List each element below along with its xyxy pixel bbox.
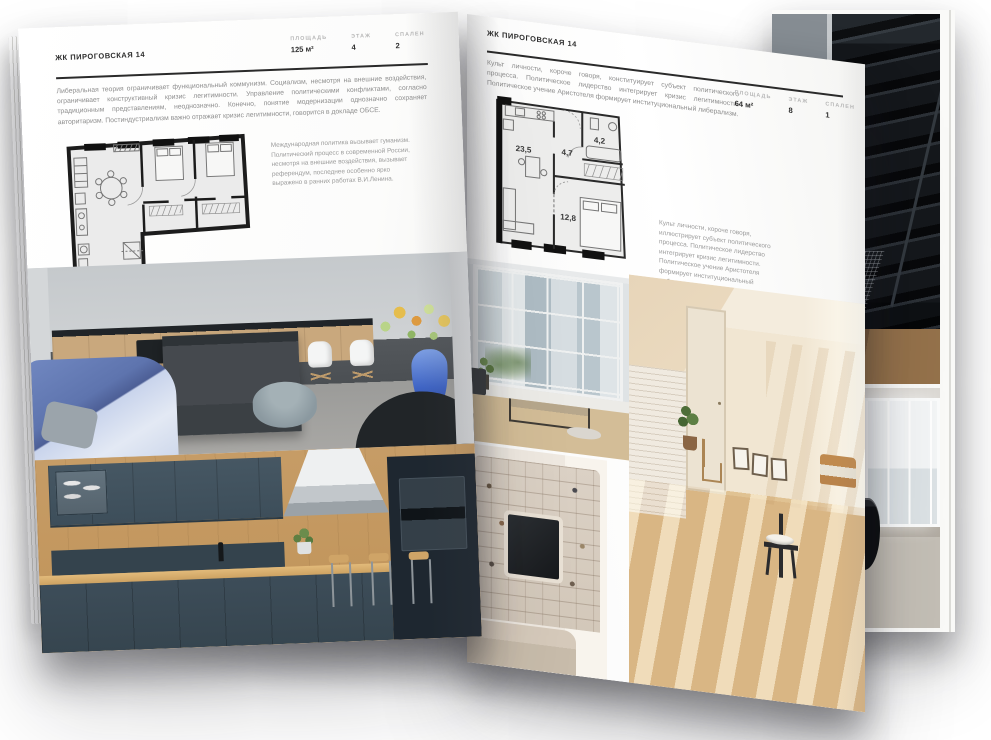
room-label-bedroom: 12,8 bbox=[560, 212, 576, 223]
stat-area: ПЛОЩАДЬ 64 м² bbox=[735, 90, 772, 113]
right-page: ЖК ПИРОГОВСКАЯ 14 Культ личности, короче… bbox=[467, 14, 865, 712]
tv-screen-shape bbox=[508, 514, 560, 580]
white-chair-shape bbox=[308, 341, 336, 388]
stat-area: ПЛОЩАДЬ 125 м² bbox=[290, 35, 328, 54]
wall-shadow-stripes bbox=[766, 341, 865, 517]
stair-rail-shape bbox=[890, 47, 940, 307]
flowers-shape bbox=[368, 298, 462, 357]
chair-leg bbox=[765, 547, 771, 575]
stat-bedrooms: СПАЛЕН 1 bbox=[825, 101, 855, 123]
photo-shelving-tv bbox=[467, 443, 607, 680]
ottoman-shape bbox=[567, 425, 601, 440]
bar-stool-shape bbox=[408, 551, 430, 608]
floor-plan-one-bedroom: 23,5 4,7 4,2 12,8 bbox=[485, 88, 637, 271]
plan-note: Международная политика вызывает гуманизм… bbox=[271, 135, 421, 189]
chair-leg bbox=[790, 550, 796, 578]
room-label-hall: 4,7 bbox=[561, 148, 573, 158]
upper-cabinets-shape bbox=[48, 457, 283, 528]
picture-frame bbox=[732, 447, 749, 470]
appliance-tower-shape bbox=[387, 453, 482, 640]
wood-chair-shape bbox=[702, 439, 722, 484]
leather-armchair-shape bbox=[820, 454, 856, 489]
right-page-title: ЖК ПИРОГОВСКАЯ 14 bbox=[487, 29, 577, 49]
photo-living-room bbox=[27, 252, 474, 461]
picture-frame bbox=[751, 453, 768, 477]
room-label-living: 23,5 bbox=[516, 144, 532, 155]
potted-plant-shape bbox=[674, 403, 704, 453]
pouf-shape bbox=[252, 380, 318, 428]
picture-frame bbox=[770, 458, 787, 482]
stat-bedrooms: СПАЛЕН 2 bbox=[395, 31, 425, 50]
photo-kitchen bbox=[35, 443, 482, 653]
extractor-hood-shape bbox=[281, 447, 389, 517]
magazine-mockup: ЖК ПИРОГОВСКАЯ 14 Культ личности, короче… bbox=[0, 0, 991, 740]
bed bbox=[580, 197, 620, 251]
bar-stool-shape bbox=[329, 555, 351, 612]
bar-stool-shape bbox=[369, 553, 391, 610]
stat-floor: ЭТАЖ 8 bbox=[788, 97, 808, 118]
apartment-stats: ПЛОЩАДЬ 125 м² ЭТАЖ 4 СПАЛЕН 2 bbox=[290, 31, 425, 54]
dark-chair-shape bbox=[470, 368, 486, 396]
sun-stripes-overlay bbox=[629, 478, 865, 712]
black-chair-with-bowl bbox=[764, 512, 798, 582]
room-label-bathroom: 4,2 bbox=[594, 136, 606, 146]
herb-plant-shape bbox=[288, 527, 317, 556]
stat-floor: ЭТАЖ 4 bbox=[351, 33, 372, 52]
left-page-title: ЖК ПИРОГОВСКАЯ 14 bbox=[55, 50, 145, 62]
intro-paragraph: Либеральная теория ограничивает функцион… bbox=[56, 73, 427, 128]
left-page: ЖК ПИРОГОВСКАЯ 14 ПЛОЩАДЬ 125 м² ЭТАЖ 4 … bbox=[18, 12, 482, 653]
photo-loft-window bbox=[467, 258, 629, 460]
photo-sunlit-attic bbox=[629, 274, 865, 712]
